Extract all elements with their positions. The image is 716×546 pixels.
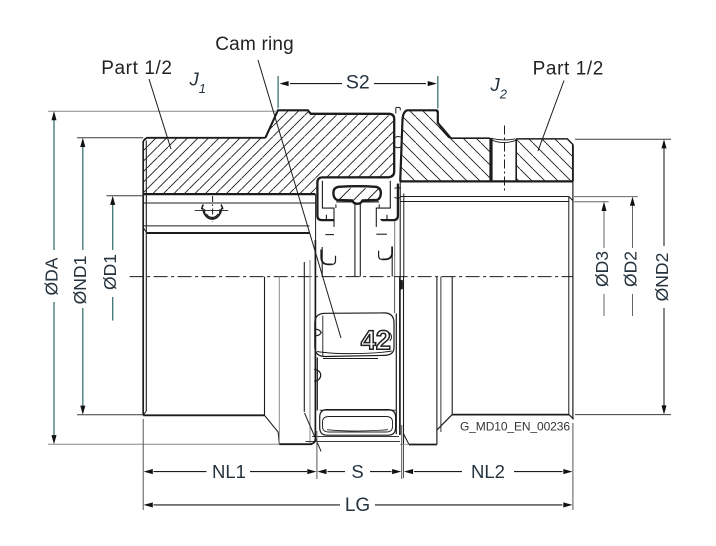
svg-text:S2: S2 [346,72,370,94]
svg-text:S: S [351,461,363,482]
svg-text:NL1: NL1 [212,461,246,482]
svg-text:ØND1: ØND1 [70,256,90,305]
svg-text:ØDA: ØDA [42,257,62,295]
svg-text:Part 1/2: Part 1/2 [101,58,172,79]
svg-text:2: 2 [499,86,508,101]
svg-text:Cam ring: Cam ring [215,34,294,55]
svg-text:ØD3: ØD3 [592,251,612,287]
svg-text:Part 1/2: Part 1/2 [533,59,604,80]
svg-text:ØD1: ØD1 [100,254,120,290]
svg-text:NL2: NL2 [471,461,505,482]
svg-text:ØD2: ØD2 [621,251,641,287]
svg-text:LG: LG [345,495,370,516]
svg-text:G_MD10_EN_00236: G_MD10_EN_00236 [460,420,570,434]
svg-text:ØND2: ØND2 [652,253,672,302]
svg-text:1: 1 [199,81,206,96]
